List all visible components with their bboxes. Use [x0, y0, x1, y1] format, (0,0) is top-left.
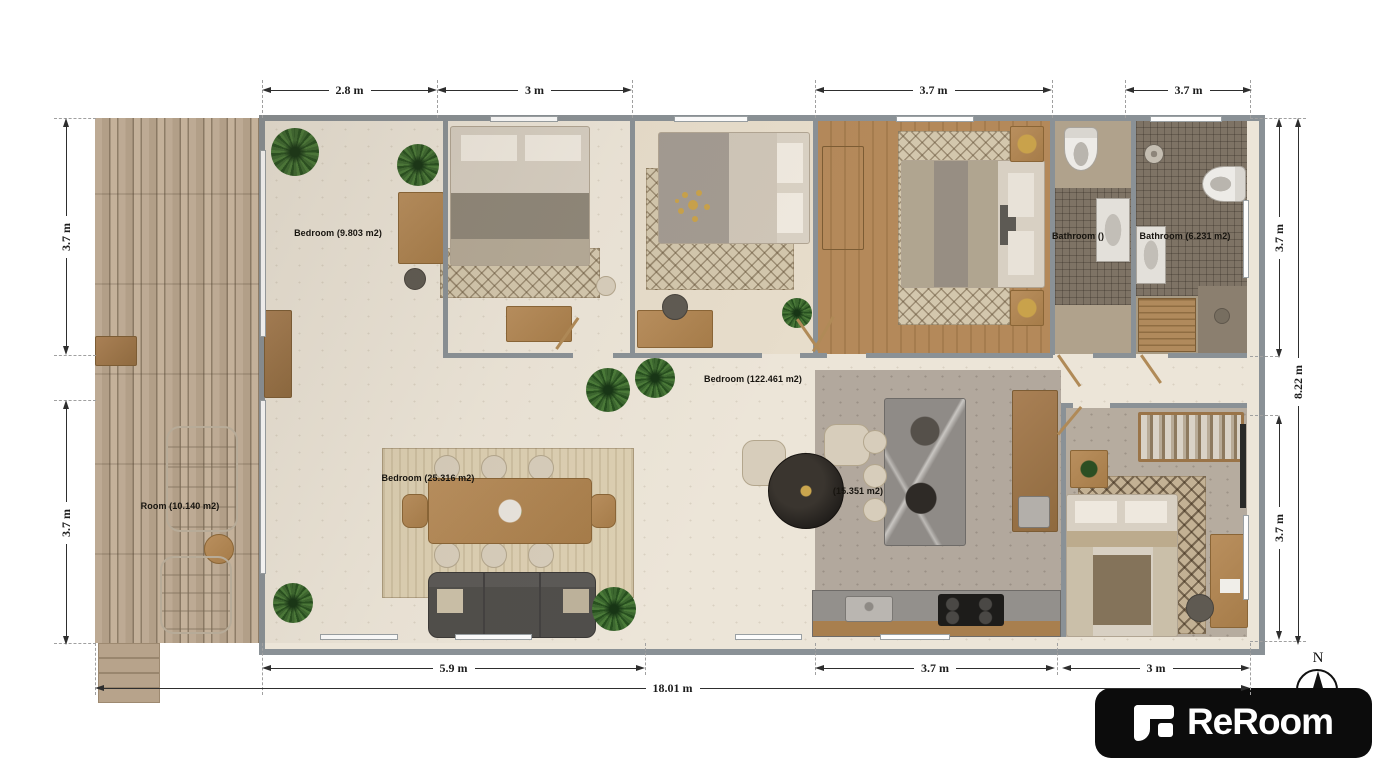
dining-table: [428, 478, 592, 544]
wall-bedroom1-west: [443, 121, 448, 355]
dining-chair: [481, 542, 507, 568]
extension-line: [632, 80, 633, 118]
wall-bedroom2-west: [630, 121, 635, 355]
plant: [271, 128, 319, 176]
room-label-bathroom-2: Bathroom (6.231 m2): [1140, 231, 1231, 241]
plant: [592, 587, 636, 631]
bedroom1-desk: [398, 192, 444, 264]
deck-lounge-chair-1: [166, 426, 238, 532]
dimension-right-total: 8.22 m: [1292, 118, 1304, 645]
room-label-bathroom-1: Bathroom (): [1052, 231, 1104, 241]
kitchen-sink: [845, 596, 893, 622]
deck-table: [95, 336, 137, 366]
window-north-1: [490, 116, 558, 122]
sofa: [428, 572, 596, 638]
dimension-top-4: 3.7 m: [1125, 84, 1252, 96]
window-north-3: [896, 116, 974, 122]
plant: [586, 368, 630, 412]
room-label-deck: Room (10.140 m2): [141, 501, 220, 511]
dining-head-chair-left: [402, 494, 428, 528]
deck-lounge-chair-2: [160, 556, 232, 634]
bedroom4-desk-chair: [1186, 594, 1214, 622]
window-east-1: [1243, 200, 1249, 278]
bedroom3-bed: [901, 160, 1045, 288]
wall-south-seg1: [443, 353, 573, 358]
floorplan-canvas: Bedroom (9.803 m2) Bedroom (122.461 m2) …: [0, 0, 1380, 768]
bathroom2-wood-mat: [1138, 298, 1196, 352]
window-south-2: [455, 634, 532, 640]
bedroom4-nightstand: [1070, 450, 1108, 488]
reroom-logo-icon: [1134, 703, 1174, 743]
plant: [397, 144, 439, 186]
dimension-bottom-2: 3.7 m: [815, 662, 1055, 674]
bathroom1-toilet: [1064, 127, 1098, 171]
bedroom4-wardrobe: [1138, 412, 1244, 462]
dining-chair: [528, 542, 554, 568]
kitchen-stool: [863, 498, 887, 522]
room-label-bedroom-1: Bedroom (9.803 m2): [294, 228, 382, 238]
kitchen-stool: [863, 430, 887, 454]
dimension-left-1: 3.7 m: [60, 118, 72, 355]
wall-bathroom2-west: [1131, 121, 1136, 355]
dimension-right-2: 3.7 m: [1273, 415, 1285, 640]
dining-chair: [434, 542, 460, 568]
bedroom1-bed: [450, 126, 590, 266]
window-north-4: [1150, 116, 1222, 122]
kitchen-island: [884, 398, 966, 546]
room-label-kitchen: (15.351 m2): [833, 486, 883, 496]
plant: [782, 298, 812, 328]
extension-line: [54, 355, 96, 356]
wall-bedroom4-north-b: [1110, 403, 1247, 408]
window-east-2: [1243, 515, 1249, 600]
wall-south-seg5: [1093, 353, 1136, 358]
deck-steps: [98, 643, 160, 703]
room-label-hallway: Bedroom (122.461 m2): [704, 374, 802, 384]
dimension-top-1: 2.8 m: [262, 84, 437, 96]
wall-south-seg4: [866, 353, 1053, 358]
extension-line: [1250, 643, 1251, 695]
wall-south-seg6: [1168, 353, 1247, 358]
living-console: [264, 310, 292, 398]
reroom-logo: ReRoom: [1095, 688, 1372, 758]
bathroom1-sink: [1096, 198, 1130, 262]
bedroom2-desk-chair: [662, 294, 688, 320]
dimension-top-2: 3 m: [437, 84, 632, 96]
dimension-left-2: 3.7 m: [60, 400, 72, 645]
extension-line: [1057, 643, 1058, 675]
extension-line: [645, 643, 646, 675]
wall-south-seg3: [800, 353, 827, 358]
wall-bedroom3-west: [813, 121, 818, 355]
sliding-door-west-1: [260, 150, 266, 337]
bedroom2-bed: [658, 132, 810, 244]
dimension-bottom-total: 18.01 m: [95, 682, 1250, 694]
bathroom2-shower-head: [1144, 144, 1164, 164]
window-north-2: [674, 116, 748, 122]
kitchen-cabinet-sink: [1018, 496, 1050, 528]
kitchen-stove: [938, 594, 1004, 626]
kitchen-stool: [863, 464, 887, 488]
dimension-bottom-1: 5.9 m: [262, 662, 645, 674]
bedroom4-tv-panel: [1240, 424, 1246, 508]
reroom-logo-text: ReRoom: [1187, 701, 1333, 745]
bedroom3-nightstand-south: [1010, 290, 1044, 326]
plant: [273, 583, 313, 623]
wall-bedroom4-west: [1061, 403, 1066, 637]
window-south-3: [735, 634, 802, 640]
room-label-living-room: Bedroom (25.316 m2): [382, 473, 475, 483]
bedroom2-chandelier: [688, 200, 698, 210]
bathroom2-drain: [1214, 308, 1230, 324]
bedroom1-stool: [596, 276, 616, 296]
bedroom4-bed: [1066, 494, 1178, 637]
bedroom3-tv-console: [822, 146, 864, 250]
dimension-bottom-3: 3 m: [1062, 662, 1250, 674]
dimension-right-1: 3.7 m: [1273, 118, 1285, 358]
extension-line: [1052, 80, 1053, 118]
bathroom2-toilet: [1202, 166, 1246, 202]
window-south-4: [880, 634, 950, 640]
window-south-1: [320, 634, 398, 640]
sliding-door-west-2: [260, 400, 266, 574]
dining-head-chair-right: [590, 494, 616, 528]
compass-north-label: N: [1313, 650, 1324, 667]
dimension-top-3: 3.7 m: [815, 84, 1052, 96]
bedroom1-desk-chair: [404, 268, 426, 290]
wall-south-seg2: [613, 353, 762, 358]
plant: [635, 358, 675, 398]
bedroom3-nightstand-north: [1010, 126, 1044, 162]
